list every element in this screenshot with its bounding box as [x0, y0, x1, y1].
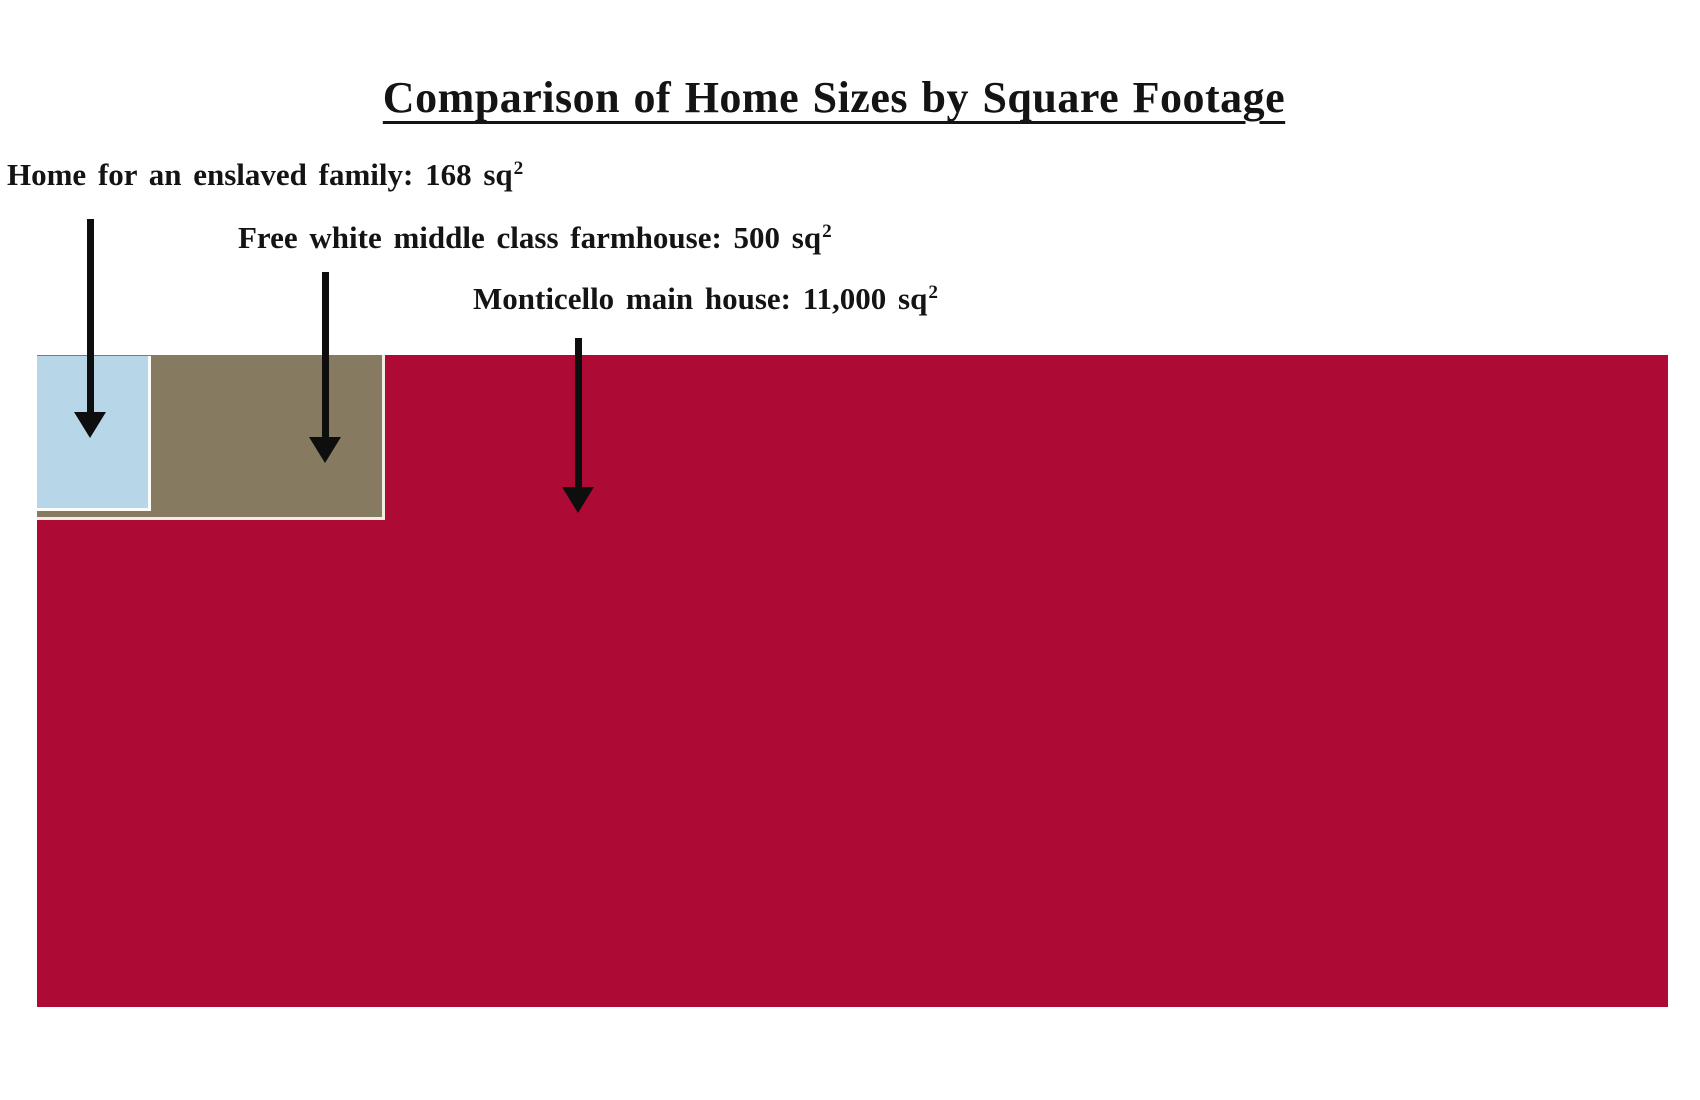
farmhouse-label: Free white middle class farmhouse: 500 s…: [238, 220, 832, 256]
home-size-comparison-chart: Comparison of Home Sizes by Square Foota…: [0, 0, 1700, 1100]
farmhouse-label-text: Free white middle class farmhouse: 500 s…: [238, 220, 821, 255]
arrow-line: [322, 272, 329, 437]
arrow-head-icon: [562, 487, 594, 513]
monticello-label-sup: 2: [928, 282, 938, 303]
farmhouse-label-sup: 2: [822, 221, 832, 242]
monticello-label: Monticello main house: 11,000 sq2: [473, 281, 938, 317]
enslaved-home-label-sup: 2: [514, 158, 524, 179]
monticello-arrow: [562, 338, 594, 513]
arrow-line: [87, 219, 94, 412]
chart-title: Comparison of Home Sizes by Square Foota…: [0, 72, 1668, 123]
farmhouse-arrow: [309, 272, 341, 463]
enslaved-home-arrow: [74, 219, 106, 438]
arrow-head-icon: [309, 437, 341, 463]
arrow-line: [575, 338, 582, 487]
arrow-head-icon: [74, 412, 106, 438]
enslaved-home-label: Home for an enslaved family: 168 sq2: [7, 157, 523, 193]
enslaved-home-label-text: Home for an enslaved family: 168 sq: [7, 157, 513, 192]
monticello-label-text: Monticello main house: 11,000 sq: [473, 281, 927, 316]
